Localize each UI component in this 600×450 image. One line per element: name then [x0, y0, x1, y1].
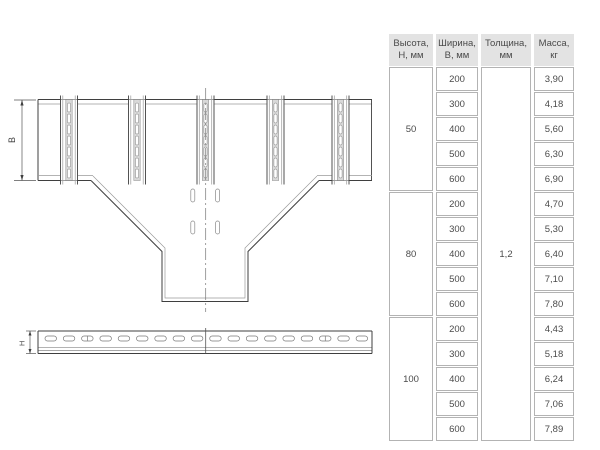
mass-cell: 3,90	[534, 67, 574, 91]
side-slot	[100, 336, 112, 341]
mass-cell: 7,89	[534, 417, 574, 441]
mass-cell: 5,30	[534, 217, 574, 241]
header-width: Ширина, В, мм	[436, 34, 478, 66]
page: В	[0, 0, 600, 450]
side-slot	[228, 336, 240, 341]
branch-slot	[191, 189, 195, 202]
mass-cell: 7,06	[534, 392, 574, 416]
side-slot	[356, 336, 368, 341]
mass-cell: 7,10	[534, 267, 574, 291]
side-slot	[338, 336, 350, 341]
mass-cell: 4,70	[534, 192, 574, 216]
branch-outline-outer	[91, 181, 319, 302]
top-view: В	[7, 88, 372, 312]
branch-outline-inner	[93, 176, 317, 298]
height-cell: 50	[389, 67, 433, 191]
mass-cell: 4,18	[534, 92, 574, 116]
mass-cell: 6,90	[534, 167, 574, 191]
branch-slot	[216, 221, 220, 234]
dimension-height-H: Н	[18, 331, 37, 354]
mass-cell: 5,60	[534, 117, 574, 141]
mass-cell: 6,24	[534, 367, 574, 391]
table-header-row: Высота, Н, мм Ширина, В, мм Толщина, мм …	[389, 34, 574, 66]
width-cell: 400	[436, 242, 478, 266]
branch-slot	[191, 221, 195, 234]
height-dim-label: Н	[18, 341, 27, 346]
side-slot	[301, 336, 313, 341]
rung	[128, 96, 146, 185]
side-slot	[63, 336, 75, 341]
width-cell: 400	[436, 367, 478, 391]
table-row: 50 200 1,2 3,90	[389, 67, 574, 91]
side-slot	[210, 336, 222, 341]
side-slot	[246, 336, 257, 341]
width-cell: 500	[436, 142, 478, 166]
side-slot	[155, 336, 167, 341]
header-height: Высота, Н, мм	[389, 34, 433, 66]
width-cell: 600	[436, 167, 478, 191]
mass-cell: 6,30	[534, 142, 574, 166]
side-slot	[265, 336, 277, 341]
mass-cell: 4,43	[534, 317, 574, 341]
side-slot	[173, 336, 185, 341]
width-cell: 300	[436, 342, 478, 366]
width-cell: 200	[436, 192, 478, 216]
cable-tray-tee-drawing: В	[0, 0, 385, 450]
side-slot	[283, 336, 295, 341]
branch-slot	[216, 189, 220, 202]
width-cell: 500	[436, 267, 478, 291]
width-cell: 600	[436, 292, 478, 316]
height-cell: 80	[389, 192, 433, 316]
mass-cell: 5,18	[534, 342, 574, 366]
height-cell: 100	[389, 317, 433, 441]
header-mass: Масса, кг	[534, 34, 574, 66]
width-cell: 200	[436, 67, 478, 91]
side-slot	[137, 336, 149, 341]
width-cell: 200	[436, 317, 478, 341]
arrow-down-icon	[20, 175, 23, 181]
arrow-up-icon	[20, 100, 23, 106]
side-slot	[191, 336, 203, 341]
rung	[332, 96, 350, 185]
spec-table: Высота, Н, мм Ширина, В, мм Толщина, мм …	[386, 33, 577, 442]
arrow-up-icon	[29, 331, 32, 336]
thickness-cell: 1,2	[481, 67, 531, 441]
rung	[60, 96, 78, 185]
side-view: Н	[18, 328, 373, 354]
mass-cell: 6,40	[534, 242, 574, 266]
mass-cell: 7,80	[534, 292, 574, 316]
width-cell: 400	[436, 117, 478, 141]
width-cell: 600	[436, 417, 478, 441]
width-cell: 500	[436, 392, 478, 416]
width-cell: 300	[436, 217, 478, 241]
width-dim-label: В	[7, 137, 17, 143]
dimension-width-B: В	[7, 100, 36, 181]
side-slot	[118, 336, 130, 341]
arrow-down-icon	[29, 349, 32, 354]
side-slot	[45, 336, 57, 341]
header-thickness: Толщина, мм	[481, 34, 531, 66]
rung	[267, 96, 285, 185]
width-cell: 300	[436, 92, 478, 116]
